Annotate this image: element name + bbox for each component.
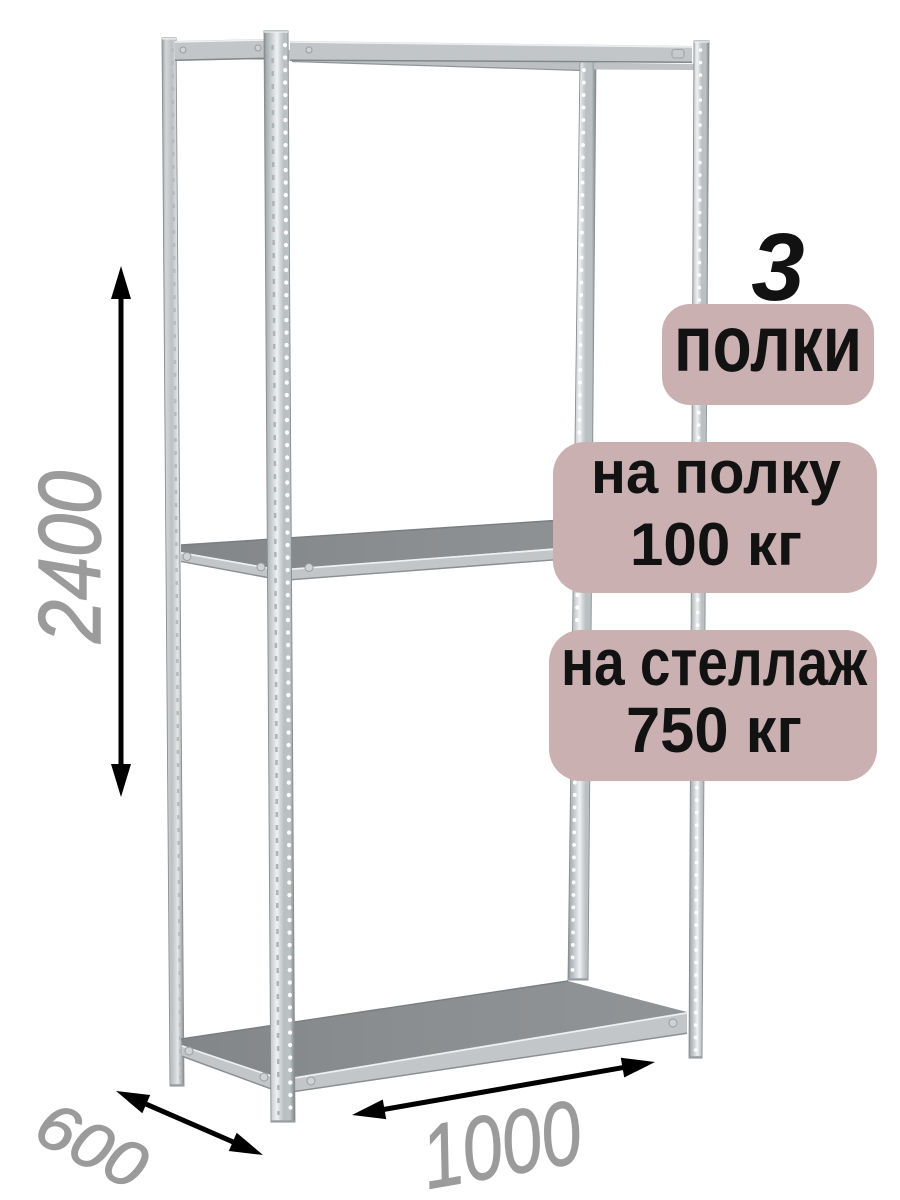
- svg-text:полки: полки: [674, 299, 862, 388]
- svg-text:на стеллаж: на стеллаж: [561, 625, 868, 699]
- svg-text:100 кг: 100 кг: [630, 511, 802, 578]
- svg-text:750 кг: 750 кг: [626, 694, 802, 766]
- svg-text:2400: 2400: [20, 471, 119, 644]
- svg-text:на полку: на полку: [591, 439, 842, 506]
